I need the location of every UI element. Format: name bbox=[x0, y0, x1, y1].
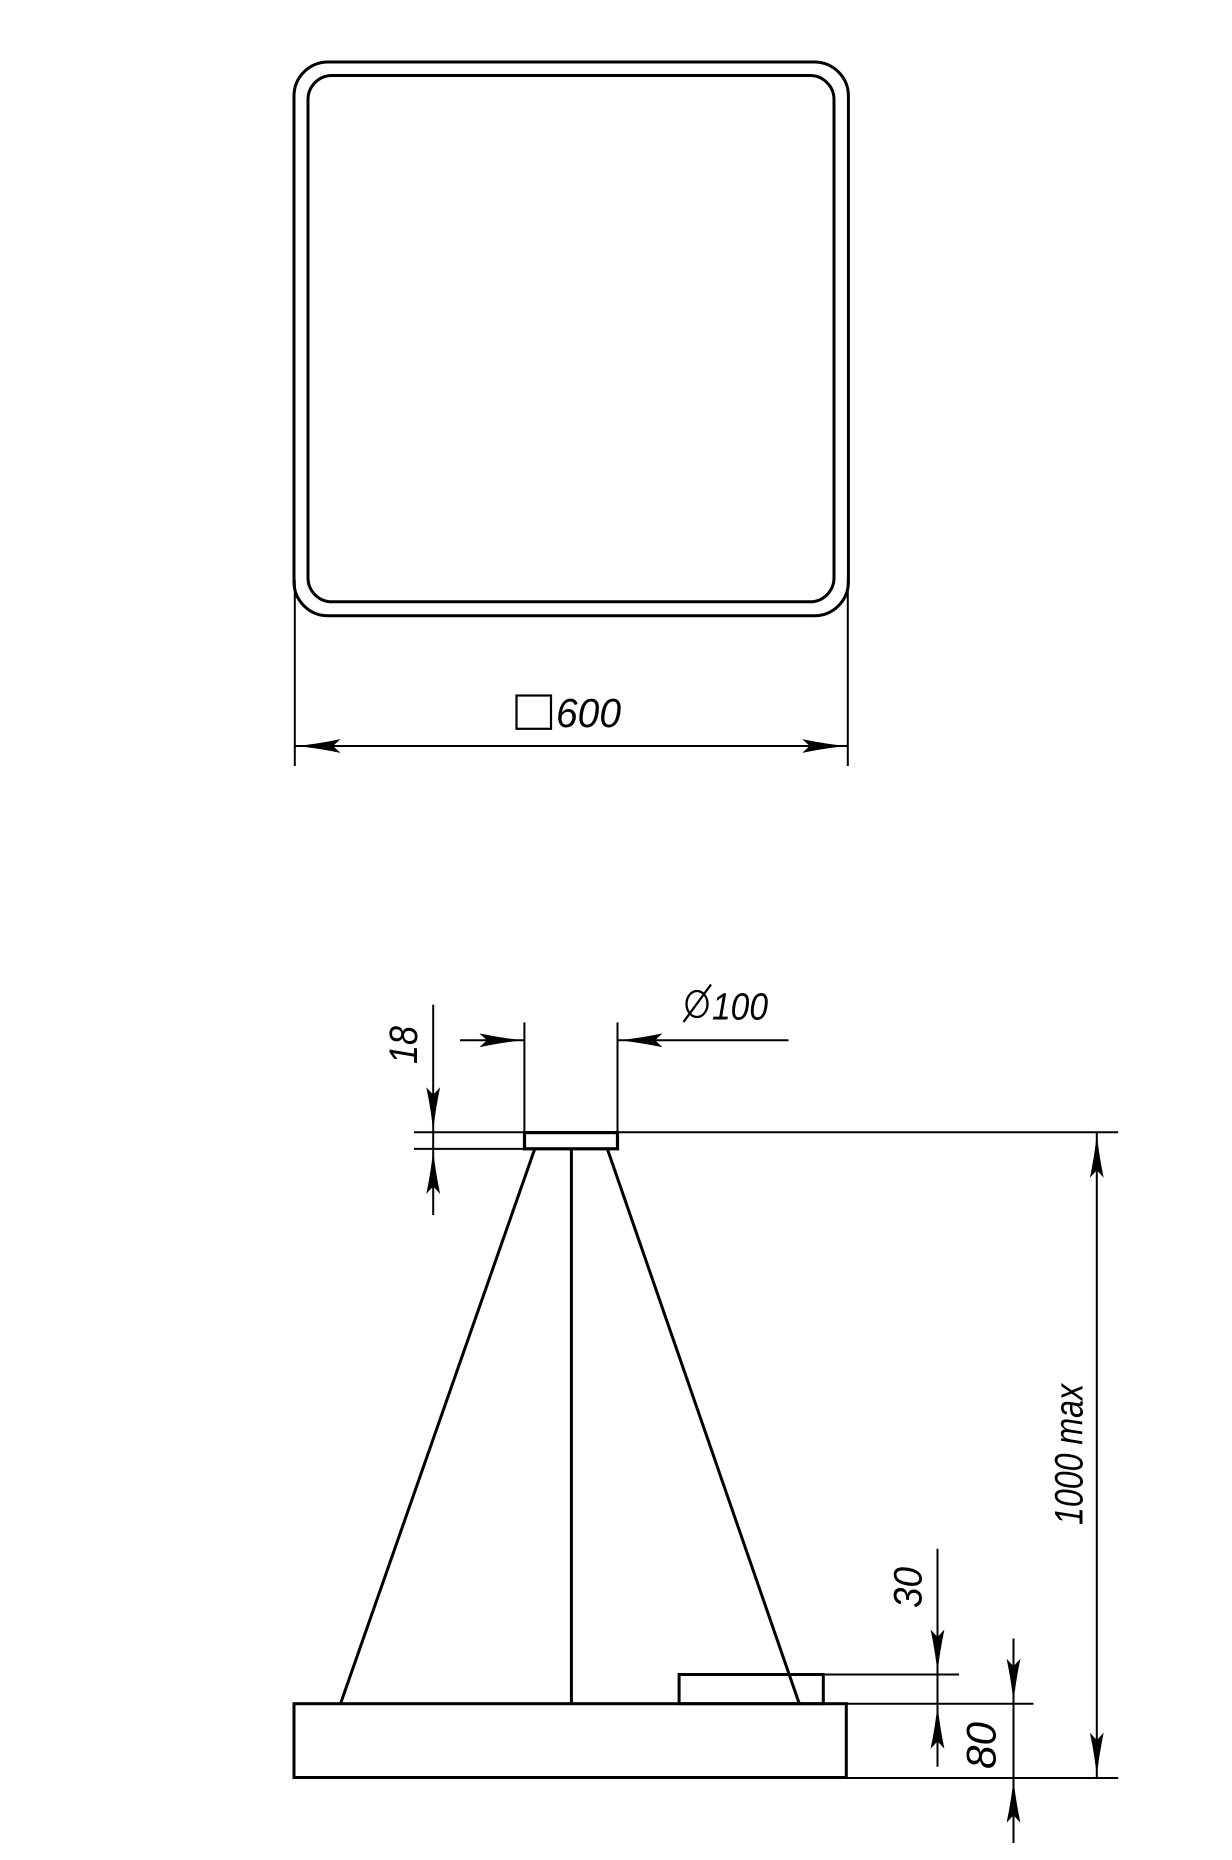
svg-text:30: 30 bbox=[887, 1567, 931, 1608]
svg-text:18: 18 bbox=[382, 1025, 426, 1064]
svg-text:100: 100 bbox=[712, 987, 768, 1029]
svg-text:80: 80 bbox=[958, 1721, 1005, 1769]
svg-text:1000 max: 1000 max bbox=[1048, 1382, 1092, 1525]
svg-text:600: 600 bbox=[556, 690, 621, 736]
